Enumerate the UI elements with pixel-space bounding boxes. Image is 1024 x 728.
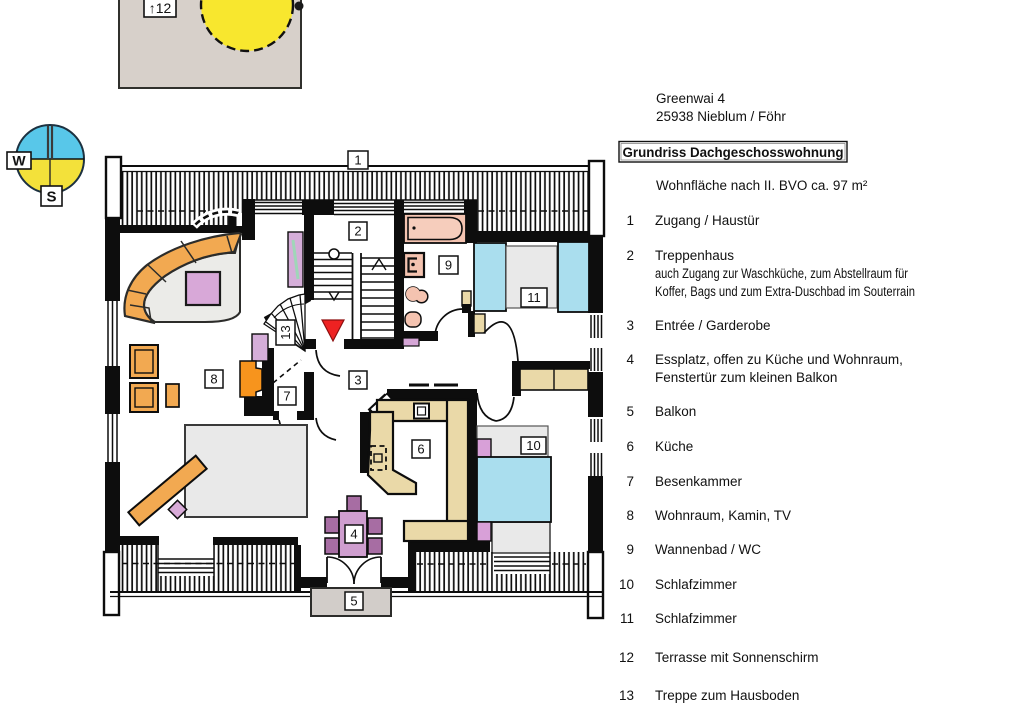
svg-text:1: 1 (354, 153, 361, 168)
svg-text:Treppe zum Hausboden: Treppe zum Hausboden (655, 688, 799, 703)
svg-text:Entrée / Garderobe: Entrée / Garderobe (655, 318, 771, 333)
svg-text:4: 4 (350, 527, 357, 542)
svg-text:10: 10 (526, 438, 540, 453)
svg-text:Wohnfläche nach II. BVO ca. 97: Wohnfläche nach II. BVO ca. 97 m² (656, 178, 868, 193)
svg-text:Essplatz, offen zu Küche und W: Essplatz, offen zu Küche und Wohnraum, (655, 352, 903, 367)
svg-text:Koffer, Bags und zum Extra-Dus: Koffer, Bags und zum Extra-Duschbad im S… (655, 284, 915, 299)
svg-text:3: 3 (354, 373, 361, 388)
svg-text:5: 5 (350, 594, 357, 609)
svg-text:6: 6 (626, 439, 634, 454)
svg-text:auch Zugang zur Waschküche, zu: auch Zugang zur Waschküche, zum Abstellr… (655, 266, 908, 281)
svg-text:10: 10 (619, 577, 634, 592)
svg-text:Zugang / Haustür: Zugang / Haustür (655, 213, 760, 228)
svg-text:25938 Nieblum / Föhr: 25938 Nieblum / Föhr (656, 109, 786, 124)
svg-text:5: 5 (626, 404, 634, 419)
svg-text:7: 7 (626, 474, 634, 489)
svg-text:Schlafzimmer: Schlafzimmer (655, 577, 737, 592)
svg-text:9: 9 (445, 258, 452, 273)
svg-text:8: 8 (210, 372, 217, 387)
svg-text:S: S (46, 189, 56, 206)
svg-text:4: 4 (626, 352, 634, 367)
svg-text:11: 11 (620, 611, 634, 626)
svg-text:13: 13 (278, 325, 293, 339)
svg-text:9: 9 (626, 542, 634, 557)
svg-text:1: 1 (626, 213, 634, 228)
svg-text:Treppenhaus: Treppenhaus (655, 248, 734, 263)
svg-text:7: 7 (283, 389, 290, 404)
svg-text:Küche: Küche (655, 439, 693, 454)
svg-text:Besenkammer: Besenkammer (655, 474, 743, 489)
svg-text:3: 3 (626, 318, 634, 333)
svg-text:8: 8 (626, 508, 634, 523)
svg-text:Grundriss Dachgeschosswohnung: Grundriss Dachgeschosswohnung (623, 145, 844, 161)
svg-text:W: W (12, 153, 26, 169)
svg-text:2: 2 (626, 248, 634, 263)
svg-text:2: 2 (354, 224, 361, 239)
svg-text:12: 12 (619, 650, 634, 665)
svg-text:Balkon: Balkon (655, 404, 696, 419)
svg-text:Wannenbad / WC: Wannenbad / WC (655, 542, 761, 557)
svg-text:Fenstertür zum kleinen Balkon: Fenstertür zum kleinen Balkon (655, 370, 837, 385)
svg-text:13: 13 (619, 688, 634, 703)
svg-text:Schlafzimmer: Schlafzimmer (655, 611, 737, 626)
svg-text:↑12: ↑12 (149, 0, 172, 16)
svg-text:Wohnraum, Kamin, TV: Wohnraum, Kamin, TV (655, 508, 791, 523)
svg-text:Terrasse mit Sonnenschirm: Terrasse mit Sonnenschirm (655, 650, 819, 665)
svg-text:11: 11 (527, 290, 541, 305)
svg-text:6: 6 (417, 442, 424, 457)
svg-text:Greenwai 4: Greenwai 4 (656, 91, 726, 106)
